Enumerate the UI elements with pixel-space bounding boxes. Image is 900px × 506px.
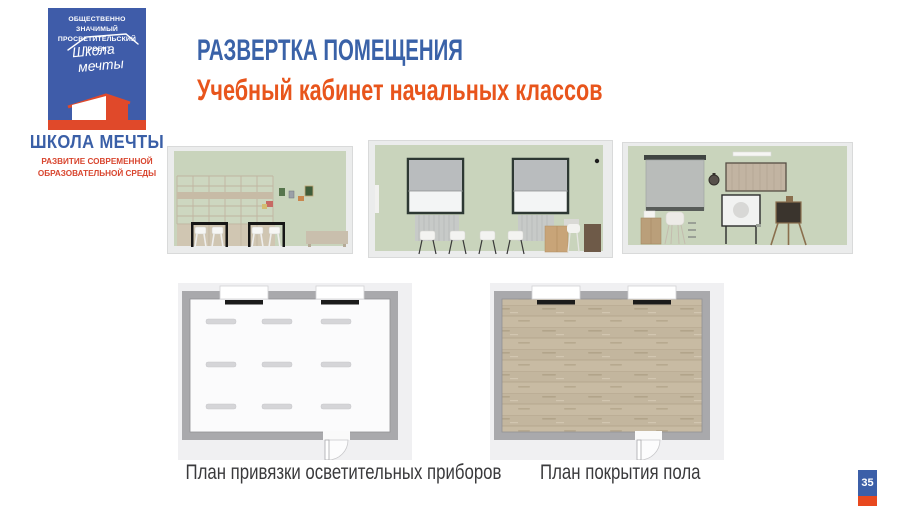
logo-tagline-line2: ОБРАЗОВАТЕЛЬНОЙ СРЕДЫ: [20, 168, 174, 180]
tall-cabinet: [584, 224, 601, 252]
window-opening: [532, 286, 580, 305]
floor-plan-lighting-drawing: [178, 283, 412, 460]
floor-plan-lighting: [178, 283, 412, 460]
presentation-slide: ОБЩЕСТВЕННО ЗНАЧИМЫЙ ПРОСВЕТИТЕЛЬСКИЙ ПР…: [0, 0, 900, 506]
wall-elevation-windows-render: [368, 140, 613, 258]
page-number-badge: 35: [858, 470, 877, 506]
logo-tagline: РАЗВИТИЕ СОВРЕМЕННОЙ ОБРАЗОВАТЕЛЬНОЙ СРЕ…: [16, 156, 178, 179]
wall-elevation-boards-render: [622, 142, 853, 254]
wood-floor: [502, 299, 702, 432]
floor-plan-covering-drawing: [490, 283, 724, 460]
acoustic-wood-panel: [726, 163, 786, 191]
school-building-icon: [48, 86, 146, 130]
window-opening: [628, 286, 676, 305]
wall-elevation-boards: [622, 142, 853, 254]
caption-lighting-plan: План привязки осветительных приборов: [146, 461, 466, 484]
page-title: РАЗВЕРТКА ПОМЕЩЕНИЯ: [197, 36, 463, 66]
page-number: 35: [858, 470, 877, 496]
door-frame-edge: [375, 185, 379, 213]
page-badge-accent: [858, 496, 877, 506]
window-opening: [220, 286, 268, 305]
ceiling-light: [733, 152, 771, 156]
wall-elevation-storage: [167, 146, 353, 254]
wall-elevation-storage-render: [167, 146, 353, 254]
window-opening: [316, 286, 364, 305]
clock-icon: [595, 159, 599, 163]
logo-brand-name: ШКОЛА МЕЧТЫ: [16, 132, 178, 153]
storage-grid: [177, 176, 273, 224]
caption-flooring-plan: План покрытия пола: [470, 461, 770, 484]
wall-elevation-windows: [368, 140, 613, 258]
projector-screen: [644, 155, 706, 211]
floor-plan-covering: [490, 283, 724, 460]
logo-tagline-line1: РАЗВИТИЕ СОВРЕМЕННОЙ: [20, 156, 174, 168]
window: [513, 159, 568, 213]
page-subtitle: Учебный кабинет начальных классов: [197, 76, 603, 106]
logo-script-text: Школа мечты: [48, 42, 146, 71]
window: [408, 159, 463, 213]
logo-banner: ОБЩЕСТВЕННО ЗНАЧИМЫЙ ПРОСВЕТИТЕЛЬСКИЙ ПР…: [48, 8, 146, 130]
